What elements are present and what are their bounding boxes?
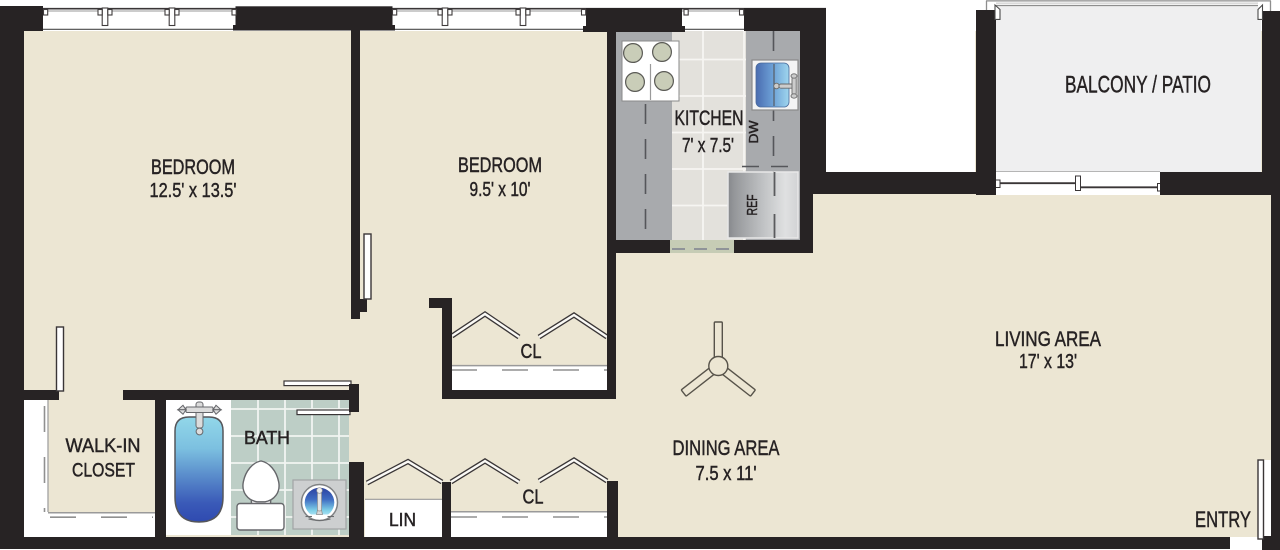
svg-text:BEDROOM: BEDROOM [151, 156, 235, 179]
svg-text:12.5' x 13.5': 12.5' x 13.5' [150, 180, 237, 202]
svg-text:LIVING AREA: LIVING AREA [995, 328, 1101, 351]
svg-text:9.5' x 10': 9.5' x 10' [470, 179, 531, 201]
svg-text:BEDROOM: BEDROOM [458, 154, 542, 177]
svg-text:LIN: LIN [389, 510, 416, 530]
svg-text:7' x 7.5': 7' x 7.5' [682, 135, 734, 157]
svg-text:7.5 x 11': 7.5 x 11' [696, 463, 757, 485]
svg-text:DW: DW [747, 120, 761, 143]
svg-text:DINING AREA: DINING AREA [673, 437, 780, 460]
svg-text:17' x 13': 17' x 13' [1019, 351, 1077, 373]
svg-text:REF: REF [745, 194, 761, 215]
svg-text:BALCONY / PATIO: BALCONY / PATIO [1065, 72, 1211, 99]
svg-text:WALK-IN: WALK-IN [66, 436, 141, 457]
svg-text:BATH: BATH [244, 428, 290, 448]
svg-text:CLOSET: CLOSET [72, 461, 135, 482]
svg-text:KITCHEN: KITCHEN [675, 107, 744, 130]
svg-text:CL: CL [521, 341, 542, 363]
svg-text:CL: CL [523, 487, 544, 509]
svg-text:ENTRY: ENTRY [1195, 507, 1251, 532]
